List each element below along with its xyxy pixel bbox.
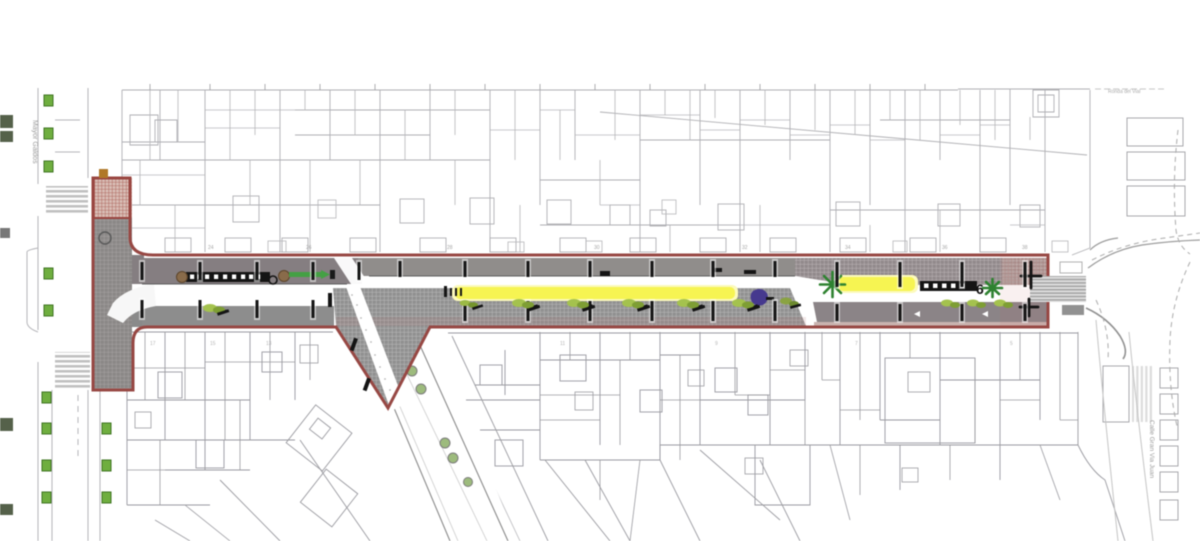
svg-text:17: 17 xyxy=(150,341,156,347)
svg-text:32: 32 xyxy=(742,245,748,251)
svg-text:34: 34 xyxy=(845,245,851,251)
svg-text:38: 38 xyxy=(1022,245,1028,251)
svg-text:7: 7 xyxy=(855,341,858,347)
svg-text:28: 28 xyxy=(447,245,453,251)
svg-text:30: 30 xyxy=(594,245,600,251)
svg-text:9: 9 xyxy=(715,341,718,347)
svg-text:24: 24 xyxy=(208,245,214,251)
svg-text:Mayor Galdos: Mayor Galdos xyxy=(31,120,38,164)
svg-text:13: 13 xyxy=(266,341,272,347)
svg-text:26: 26 xyxy=(306,245,312,251)
svg-text:5: 5 xyxy=(1010,341,1013,347)
svg-text:11: 11 xyxy=(560,341,565,347)
svg-text:Ronda del Vial: Ronda del Vial xyxy=(1108,89,1140,95)
svg-text:Calle Gran Via Juan: Calle Gran Via Juan xyxy=(1148,420,1155,478)
svg-text:36: 36 xyxy=(942,245,948,251)
svg-text:15: 15 xyxy=(210,341,216,347)
